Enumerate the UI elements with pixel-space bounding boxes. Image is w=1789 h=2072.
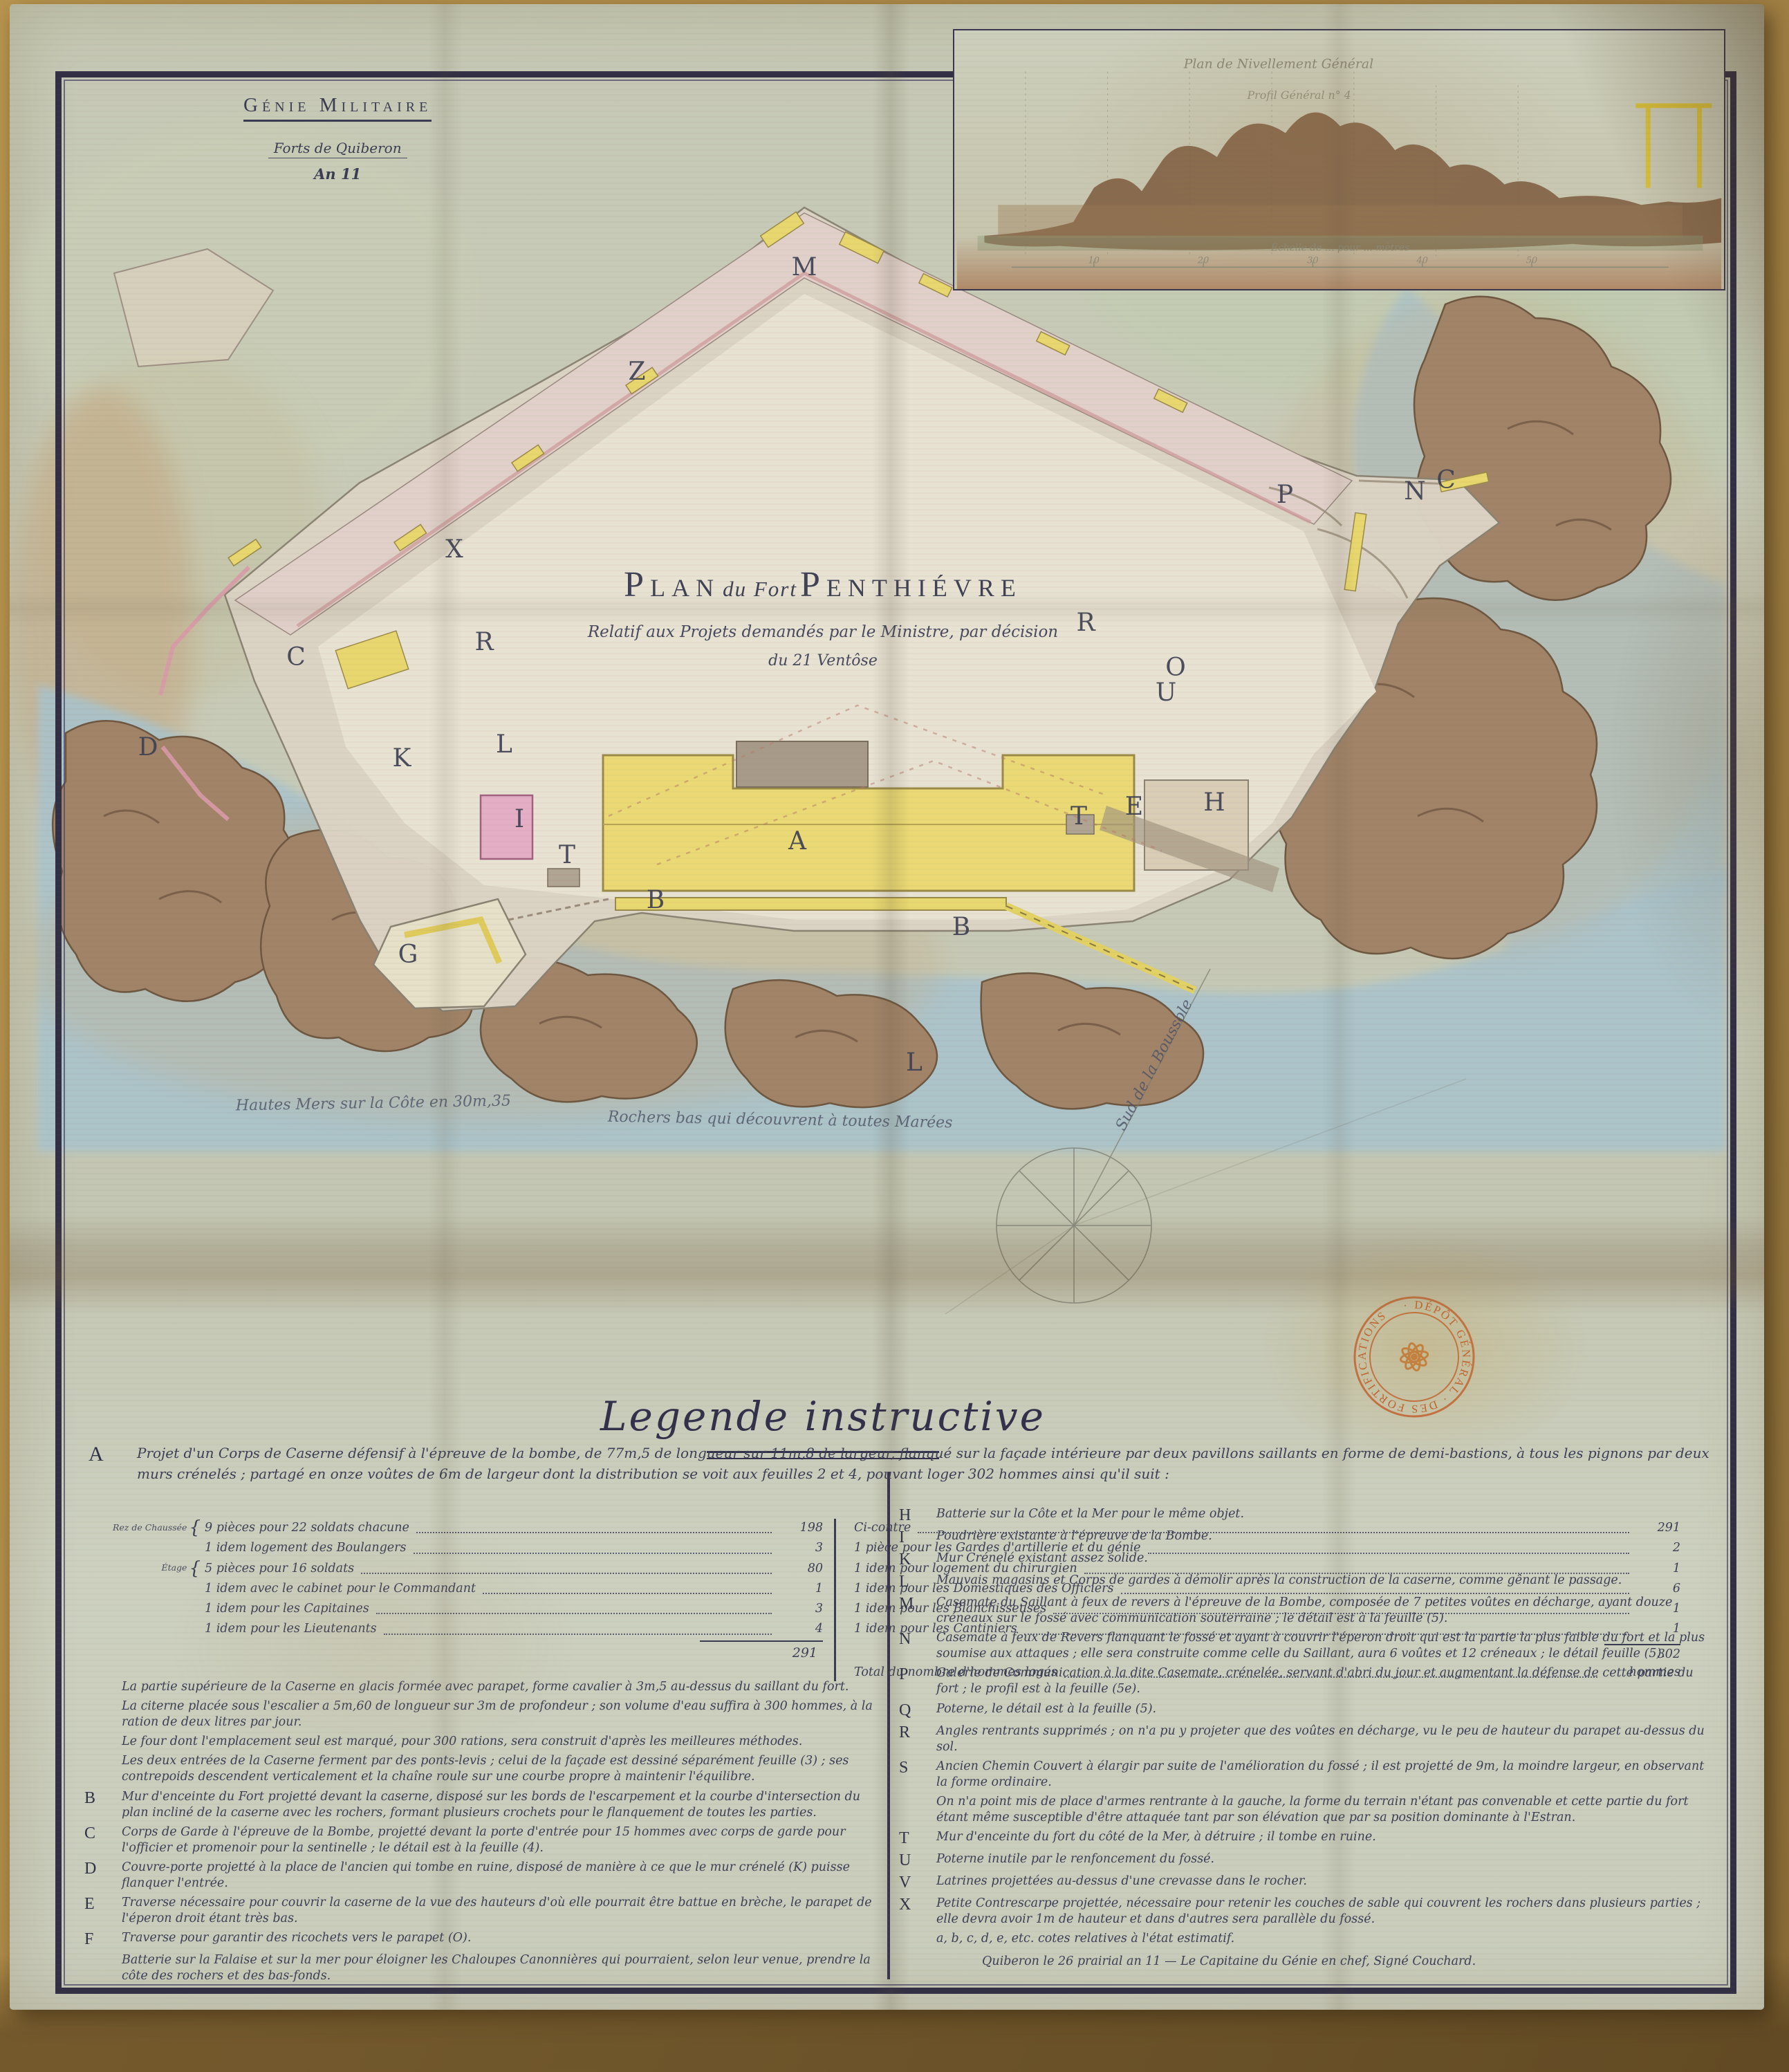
legend-entry-U: UPoterne inutile par le renfoncement du … xyxy=(899,1851,1715,1870)
legend-entry-X: XPetite Contrescarpe projettée, nécessai… xyxy=(899,1896,1715,1927)
legend-entry-F: FTraverse pour garantir des ricochets ve… xyxy=(84,1930,880,1949)
legend-entry-T: TMur d'enceinte du fort du côté de la Me… xyxy=(899,1829,1715,1848)
table-row-value: 80 xyxy=(779,1560,823,1578)
legend-entry-letter: R xyxy=(899,1723,928,1755)
legend-right-column: HBatterie sur la Côte et la Mer pour le … xyxy=(899,1506,1715,1974)
dotted-leader xyxy=(384,1634,772,1635)
legend-entry-letter: M xyxy=(899,1595,928,1627)
legend-signature: Quiberon le 26 prairial an 11 — Le Capit… xyxy=(899,1954,1715,1970)
legend-entry-letter: U xyxy=(899,1851,928,1870)
table-row-label: 5 pièces pour 16 soldats xyxy=(205,1560,354,1578)
legend-entry-text: Corps de Garde à l'épreuve de la Bombe, … xyxy=(122,1824,880,1856)
legend-entry: La partie supérieure de la Caserne en gl… xyxy=(84,1679,880,1695)
table-row: 1 idem pour les Capitaines3 xyxy=(104,1600,823,1618)
dotted-leader xyxy=(414,1553,772,1554)
legend-section: Legende instructive A Projet d'un Corps … xyxy=(10,4,1764,2010)
table-row: 1 idem avec le cabinet pour le Commandan… xyxy=(104,1580,823,1598)
legend-entry-text: Batterie sur la Côte et la Mer pour le m… xyxy=(936,1506,1715,1525)
legend-signature-text: Quiberon le 26 prairial an 11 — Le Capit… xyxy=(982,1954,1715,1970)
legend-left-column: La partie supérieure de la Caserne en gl… xyxy=(84,1679,880,1988)
legend-entry-text: Poterne inutile par le renfoncement du f… xyxy=(936,1851,1715,1870)
legend-entry-letter: C xyxy=(84,1824,113,1856)
map-sheet: MZXRCDKLITGBABTEHOURPNCL Hautes Mers sur… xyxy=(10,4,1764,2010)
legend-entry-M: MCasemate du Saillant à feux de revers à… xyxy=(899,1595,1715,1627)
dotted-leader xyxy=(416,1532,772,1533)
table-row: Étage5 pièces pour 16 soldats80 xyxy=(104,1560,823,1578)
legend-entry-text: Mauvais magasins et Corps de gardes à dé… xyxy=(936,1573,1715,1591)
legend-entry-P: PGalerie de Communication à la dite Case… xyxy=(899,1665,1715,1697)
legend-entry-letter: L xyxy=(899,1573,928,1591)
legend-entry-text: Ancien Chemin Couvert à élargir par suit… xyxy=(936,1759,1715,1791)
legend-entry-S: SAncien Chemin Couvert à élargir par sui… xyxy=(899,1759,1715,1791)
legend-entry-N: NCasemate à feux de Revers flanquant le … xyxy=(899,1630,1715,1662)
legend-entry-A: A Projet d'un Corps de Caserne défensif … xyxy=(89,1443,1714,1484)
legend-entry: Le four dont l'emplacement seul est marq… xyxy=(84,1734,880,1750)
table-row: 1 idem logement des Boulangers3 xyxy=(104,1539,823,1557)
legend-entry-letter xyxy=(84,1952,113,1984)
legend-entry: Les deux entrées de la Caserne ferment p… xyxy=(84,1753,880,1785)
legend-entry-text: La citerne placée sous l'escalier a 5m,6… xyxy=(122,1699,880,1730)
legend-entry-text: Le four dont l'emplacement seul est marq… xyxy=(122,1734,880,1750)
legend-entry-V: VLatrines projettées au-dessus d'une cre… xyxy=(899,1874,1715,1892)
dotted-leader xyxy=(483,1593,772,1594)
legend-footnote: a, b, c, d, e, etc. cotes relatives à l'… xyxy=(899,1931,1715,1947)
legend-entry-letter xyxy=(84,1734,113,1750)
legend-entry-text: La partie supérieure de la Caserne en gl… xyxy=(122,1679,880,1695)
table-row-label: 9 pièces pour 22 soldats chacune xyxy=(205,1519,409,1537)
legend-entry-letter: I xyxy=(899,1528,928,1547)
legend-entry-E: ETraverse nécessaire pour couvrir la cas… xyxy=(84,1895,880,1927)
legend-entry-letter: N xyxy=(899,1630,928,1662)
legend-entry-letter: X xyxy=(899,1896,928,1927)
legend-heading: Legende instructive xyxy=(546,1393,1100,1440)
table-row-value: 3 xyxy=(779,1539,823,1557)
legend-entry-C: CCorps de Garde à l'épreuve de la Bombe,… xyxy=(84,1824,880,1856)
table-row-value: 198 xyxy=(779,1519,823,1537)
legend-entry-letter: H xyxy=(899,1506,928,1525)
table-subtotal: 291 xyxy=(700,1640,823,1663)
legend-entry-I: IPoudrière existante à l'épreuve de la B… xyxy=(899,1528,1715,1547)
legend-footnote-text: a, b, c, d, e, etc. cotes relatives à l'… xyxy=(936,1931,1715,1947)
legend-entry-letter: Q xyxy=(899,1701,928,1720)
legend-entry-letter: B xyxy=(84,1789,113,1821)
legend-entry-letter: F xyxy=(84,1930,113,1949)
legend-entry-text: Batterie sur la Falaise et sur la mer po… xyxy=(122,1952,880,1984)
legend-entry-D: DCouvre-porte projetté à la place de l'a… xyxy=(84,1860,880,1891)
table-row: 1 idem pour les Lieutenants4 xyxy=(104,1620,823,1638)
legend-entry-letter: P xyxy=(899,1665,928,1697)
legend-entry-text: Mur Crénelé existant assez solide. xyxy=(936,1551,1715,1569)
table-row-label: 1 idem pour les Lieutenants xyxy=(205,1620,377,1638)
legend-entry-A-text: Projet d'un Corps de Caserne défensif à … xyxy=(137,1443,1714,1484)
legend-entry: Batterie sur la Falaise et sur la mer po… xyxy=(84,1952,880,1984)
legend-entry-K: KMur Crénelé existant assez solide. xyxy=(899,1551,1715,1569)
legend-entry-text: Casemate à feux de Revers flanquant le f… xyxy=(936,1630,1715,1662)
table-row-label: 1 idem logement des Boulangers xyxy=(205,1539,407,1557)
legend-entry-letter: T xyxy=(899,1829,928,1848)
table-row-label: 1 idem avec le cabinet pour le Commandan… xyxy=(205,1580,476,1598)
legend-entry-Q: QPoterne, le détail est à la feuille (5)… xyxy=(899,1701,1715,1720)
table-row-label: 1 idem pour les Capitaines xyxy=(205,1600,369,1618)
legend-footnote-letter xyxy=(899,1931,928,1947)
table-left-half: Rez de Chaussée9 pièces pour 22 soldats … xyxy=(104,1519,834,1681)
legend-entry-L: LMauvais magasins et Corps de gardes à d… xyxy=(899,1573,1715,1591)
legend-entry: La citerne placée sous l'escalier a 5m,6… xyxy=(84,1699,880,1730)
legend-entry-text: Mur d'enceinte du fort du côté de la Mer… xyxy=(936,1829,1715,1848)
legend-entry-text: Angles rentrants supprimés ; on n'a pu y… xyxy=(936,1723,1715,1755)
table-row-value: 3 xyxy=(779,1600,823,1618)
legend-entry-text: Mur d'enceinte du Fort projetté devant l… xyxy=(122,1789,880,1821)
legend-entry-letter xyxy=(84,1699,113,1730)
legend-entry-text: Couvre-porte projetté à la place de l'an… xyxy=(122,1860,880,1891)
legend-entry-text: Les deux entrées de la Caserne ferment p… xyxy=(122,1753,880,1785)
legend-entry-letter xyxy=(84,1679,113,1695)
photo-background: MZXRCDKLITGBABTEHOURPNCL Hautes Mers sur… xyxy=(0,0,1789,2072)
stamp-rosette-icon xyxy=(1398,1340,1430,1373)
legend-entry-text: Galerie de Communication à la dite Casem… xyxy=(936,1665,1715,1697)
legend-entry-H: HBatterie sur la Côte et la Mer pour le … xyxy=(899,1506,1715,1525)
legend-entry-B: BMur d'enceinte du Fort projetté devant … xyxy=(84,1789,880,1821)
table-row-value: 4 xyxy=(779,1620,823,1638)
legend-entry-letter xyxy=(899,1794,928,1826)
dotted-leader xyxy=(376,1613,772,1614)
legend-entry-text: Poudrière existante à l'épreuve de la Bo… xyxy=(936,1528,1715,1547)
table-row-value: 1 xyxy=(779,1580,823,1598)
legend-entry-text: On n'a point mis de place d'armes rentra… xyxy=(936,1794,1715,1826)
dotted-leader xyxy=(361,1573,772,1574)
table-group-label: Rez de Chaussée xyxy=(104,1519,201,1537)
legend-entry-text: Latrines projettées au-dessus d'une crev… xyxy=(936,1874,1715,1892)
legend-entry-letter: D xyxy=(84,1860,113,1891)
legend-entry-letter xyxy=(84,1753,113,1785)
legend-entry-letter: V xyxy=(899,1874,928,1892)
legend-entry-letter: S xyxy=(899,1759,928,1791)
legend-letter-A: A xyxy=(89,1443,120,1484)
table-row: Rez de Chaussée9 pièces pour 22 soldats … xyxy=(104,1519,823,1537)
table-group-label: Étage xyxy=(104,1560,201,1578)
legend-entry: On n'a point mis de place d'armes rentra… xyxy=(899,1794,1715,1826)
legend-entry-text: Casemate du Saillant à feux de revers à … xyxy=(936,1595,1715,1627)
legend-entry-text: Traverse nécessaire pour couvrir la case… xyxy=(122,1895,880,1927)
legend-entry-letter: K xyxy=(899,1551,928,1569)
archive-stamp: · DÉPÔT GÉNÉRAL · DES FORTIFICATIONS xyxy=(1332,1275,1496,1439)
legend-entry-R: RAngles rentrants supprimés ; on n'a pu … xyxy=(899,1723,1715,1755)
legend-entry-text: Petite Contrescarpe projettée, nécessair… xyxy=(936,1896,1715,1927)
legend-entry-text: Poterne, le détail est à la feuille (5). xyxy=(936,1701,1715,1720)
legend-entry-text: Traverse pour garantir des ricochets ver… xyxy=(122,1930,880,1949)
legend-entry-letter: E xyxy=(84,1895,113,1927)
